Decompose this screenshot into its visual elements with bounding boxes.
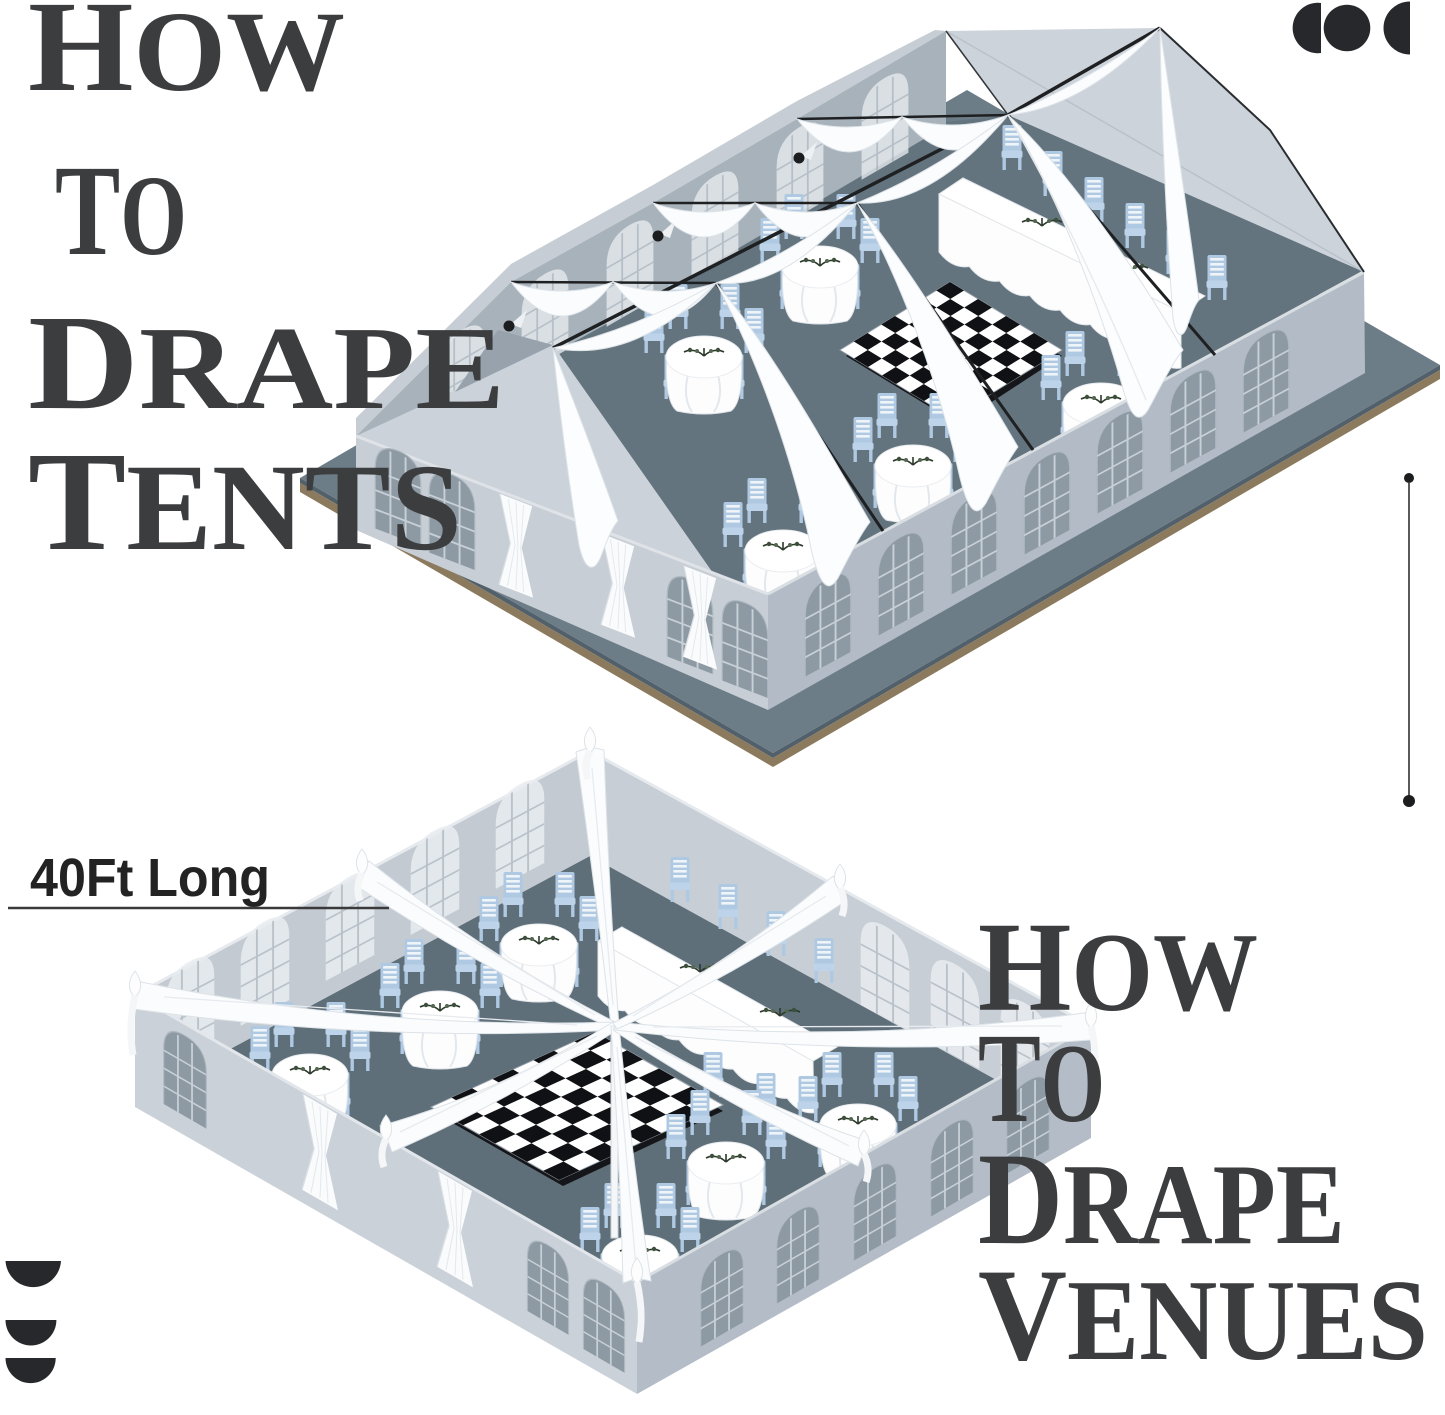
svg-text:TENTS: TENTS xyxy=(28,422,462,580)
svg-text:DRAPE: DRAPE xyxy=(28,288,505,438)
svg-text:HOW: HOW xyxy=(28,0,345,119)
svg-text:40Ft Long: 40Ft Long xyxy=(30,848,270,908)
svg-text:VENUES: VENUES xyxy=(978,1241,1428,1388)
svg-text:TO: TO xyxy=(55,139,187,283)
